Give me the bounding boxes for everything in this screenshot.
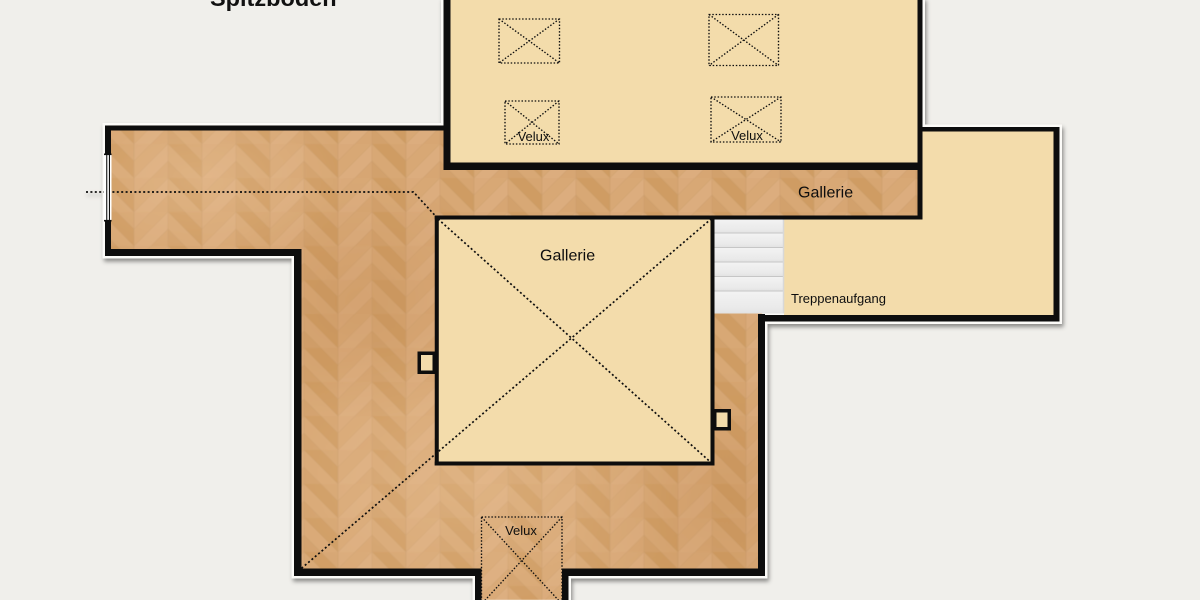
- svg-text:Velux: Velux: [505, 523, 537, 538]
- svg-text:Gallerie: Gallerie: [540, 248, 595, 265]
- svg-text:Treppenaufgang: Treppenaufgang: [791, 291, 886, 306]
- svg-text:Velux: Velux: [731, 128, 763, 143]
- svg-text:Spitzboden: Spitzboden: [210, 0, 337, 11]
- svg-text:Velux: Velux: [518, 129, 550, 144]
- svg-text:Gallerie: Gallerie: [798, 185, 853, 202]
